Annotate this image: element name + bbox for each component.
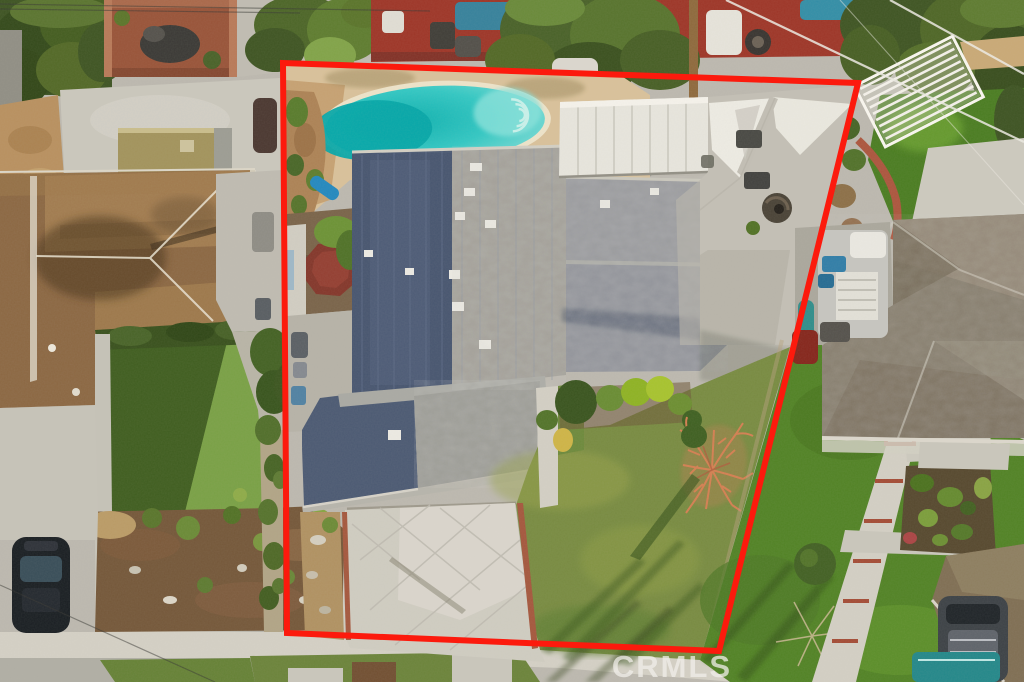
- svg-text:CRMLS: CRMLS: [612, 649, 732, 682]
